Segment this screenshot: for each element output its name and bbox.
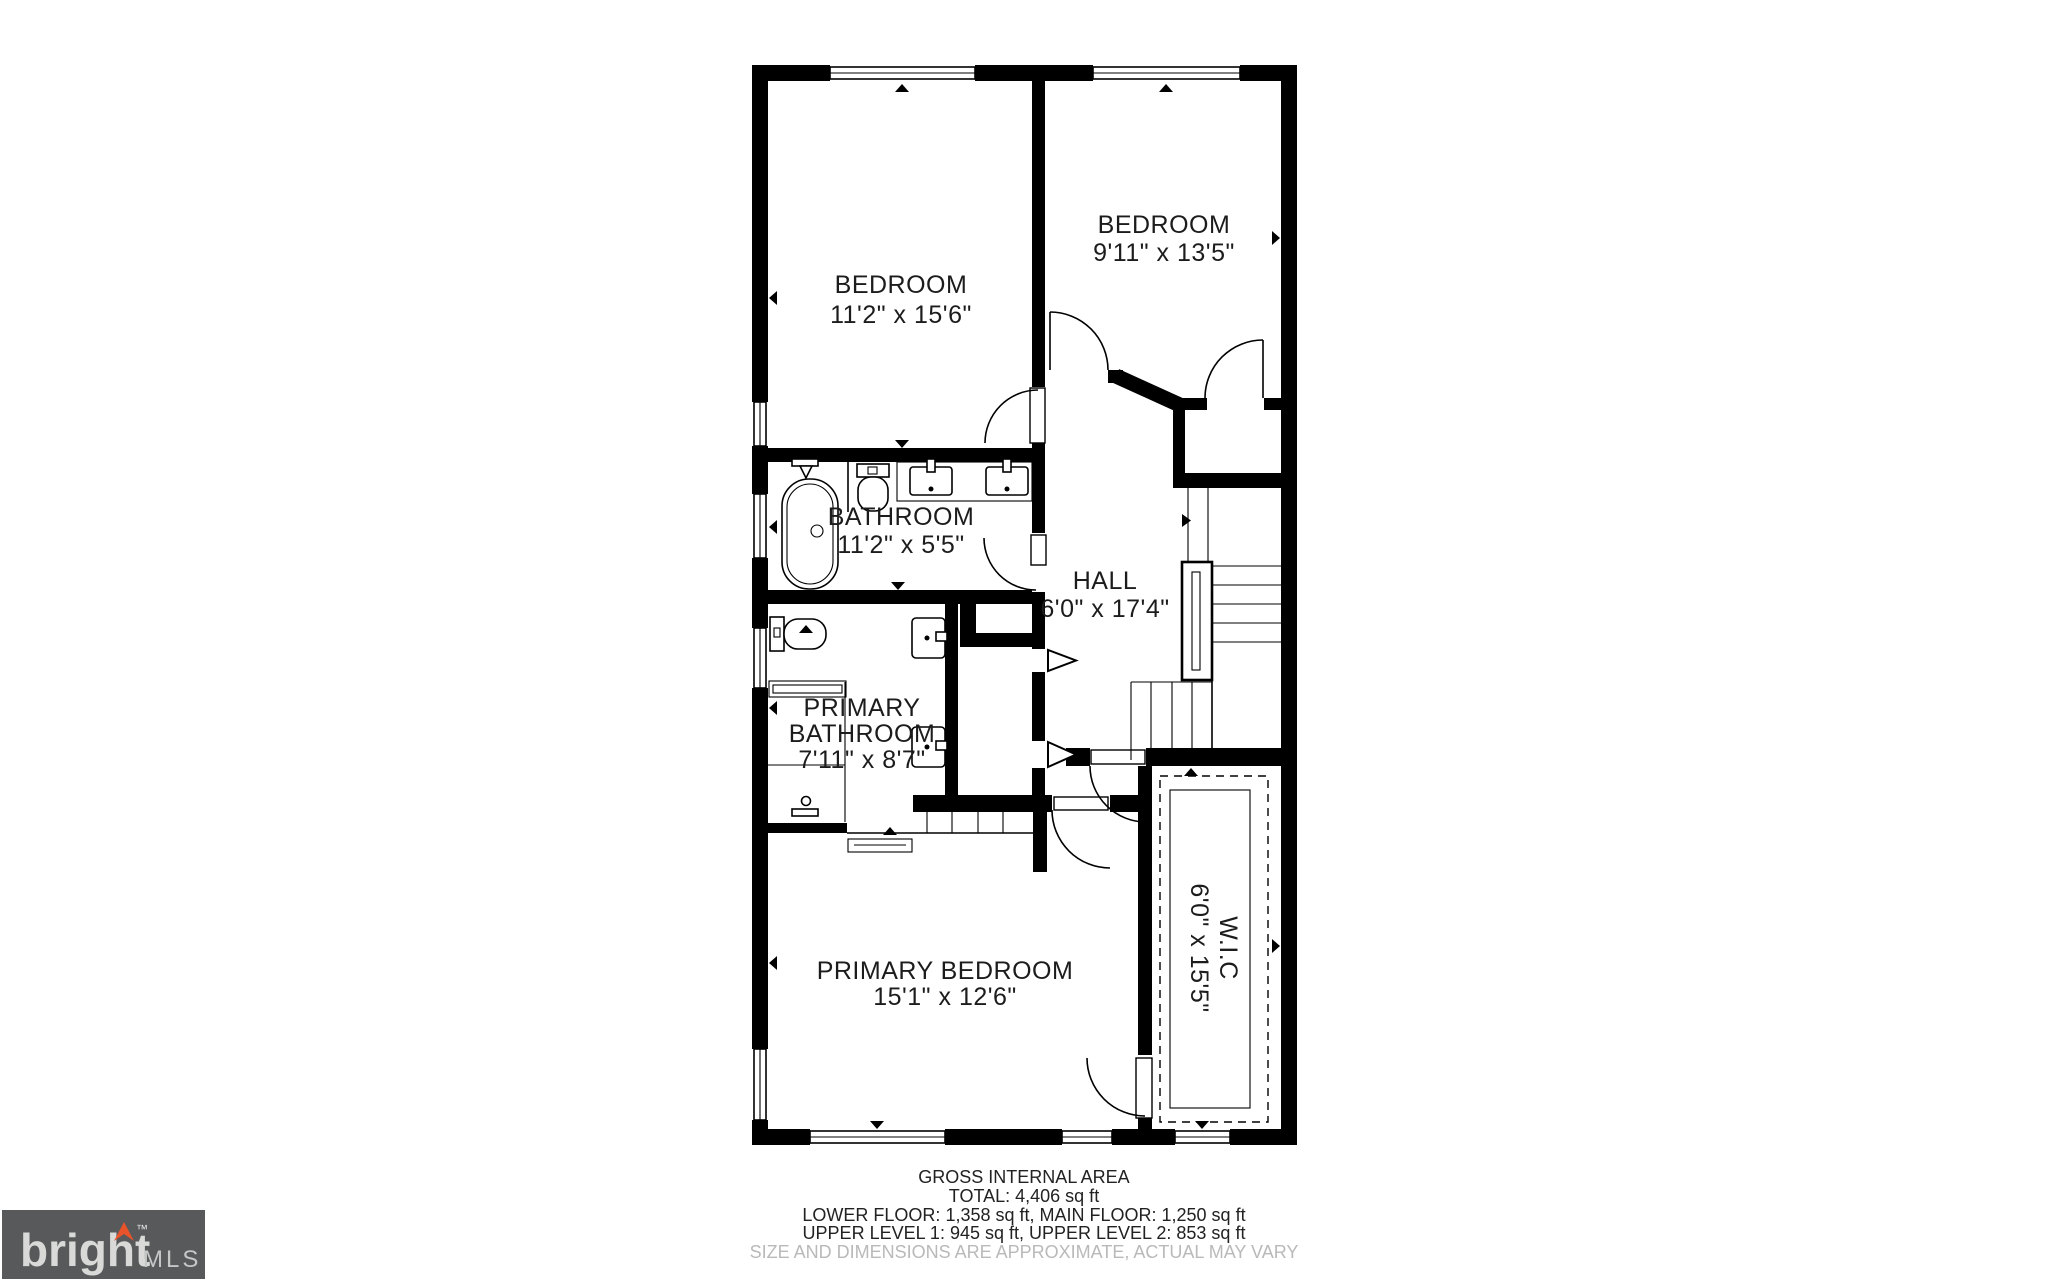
label-bedroom1-name: BEDROOM xyxy=(835,271,968,299)
marker-left-icon xyxy=(769,520,777,534)
label-wic-name: W.I.C xyxy=(1214,916,1242,980)
brightmls-logo: bright ™ MLS xyxy=(2,1210,205,1279)
logo-tm: ™ xyxy=(136,1222,148,1236)
label-wic-dims: 6'0" x 15'5" xyxy=(1185,883,1213,1012)
label-bedroom2-name: BEDROOM xyxy=(1098,211,1231,239)
window xyxy=(754,402,766,446)
label-hall-name: HALL xyxy=(1073,567,1138,595)
marker-down-icon xyxy=(895,440,909,448)
marker-left-icon xyxy=(769,291,777,305)
window xyxy=(810,1131,945,1143)
label-bedroom2-dims: 9'11" x 13'5" xyxy=(1093,239,1235,267)
marker-down-icon xyxy=(891,582,905,590)
label-bedroom1-dims: 11'2" x 15'6" xyxy=(830,301,972,329)
label-primary-bathroom-line2: BATHROOM xyxy=(789,720,936,748)
marker-left-icon xyxy=(769,956,777,970)
logo-mls-text: MLS xyxy=(143,1246,201,1273)
floor-plan-svg: BEDROOM 11'2" x 15'6" BEDROOM 9'11" x 13… xyxy=(0,0,2048,1279)
marker-right-icon xyxy=(1272,939,1280,953)
window xyxy=(754,1049,766,1120)
marker-right-icon xyxy=(1182,514,1191,527)
shower-head-icon xyxy=(792,459,818,478)
window xyxy=(754,628,766,688)
label-bathroom-dims: 11'2" x 5'5" xyxy=(837,531,964,559)
summary-disclaimer: SIZE AND DIMENSIONS ARE APPROXIMATE, ACT… xyxy=(750,1242,1299,1262)
window xyxy=(1093,67,1240,79)
opening-triangle-icon xyxy=(1048,650,1076,671)
area-summary: GROSS INTERNAL AREA TOTAL: 4,406 sq ft L… xyxy=(750,1167,1299,1262)
window xyxy=(754,494,766,558)
label-primary-bathroom-line1: PRIMARY xyxy=(804,694,921,722)
label-bathroom-name: BATHROOM xyxy=(828,503,975,531)
staircase xyxy=(1131,488,1281,760)
wall-sink xyxy=(912,618,947,658)
marker-right-icon xyxy=(1272,231,1280,245)
marker-left-icon xyxy=(769,701,777,715)
window xyxy=(1175,1131,1230,1143)
window xyxy=(830,67,975,79)
steps-primary-suite xyxy=(847,812,1033,852)
door-bathroom xyxy=(984,535,1046,590)
marker-up-icon xyxy=(895,84,909,92)
label-hall-dims: 6'0" x 17'4" xyxy=(1040,595,1169,623)
toilet xyxy=(770,617,826,651)
door-bedroom2 xyxy=(1050,312,1108,370)
summary-total: TOTAL: 4,406 sq ft xyxy=(949,1186,1099,1206)
label-primary-bathroom-dims: 7'11" x 8'7" xyxy=(798,746,925,774)
vanity-double-sink xyxy=(897,459,1032,501)
marker-down-icon xyxy=(1195,1121,1209,1129)
door-primary-bedroom xyxy=(1052,797,1110,868)
summary-floors-1: LOWER FLOOR: 1,358 sq ft, MAIN FLOOR: 1,… xyxy=(802,1205,1245,1225)
door-wic-bottom xyxy=(1087,1058,1152,1118)
marker-down-icon xyxy=(870,1121,884,1129)
logo-brand-text: bright xyxy=(20,1224,150,1276)
marker-up-icon xyxy=(1184,768,1198,776)
shower-head-icon xyxy=(792,797,818,817)
room-labels: BEDROOM 11'2" x 15'6" BEDROOM 9'11" x 13… xyxy=(789,211,1242,1013)
summary-title: GROSS INTERNAL AREA xyxy=(918,1167,1129,1187)
label-primary-bedroom-name: PRIMARY BEDROOM xyxy=(817,957,1074,985)
summary-floors-2: UPPER LEVEL 1: 945 sq ft, UPPER LEVEL 2:… xyxy=(803,1223,1246,1243)
floor-plan-page: BEDROOM 11'2" x 15'6" BEDROOM 9'11" x 13… xyxy=(0,0,2048,1279)
door-bedroom1 xyxy=(985,388,1045,443)
door-bedroom2-closet xyxy=(1205,340,1263,398)
window xyxy=(1062,1131,1112,1143)
marker-up-icon xyxy=(883,827,897,835)
stair-railing xyxy=(1182,562,1212,680)
bathtub xyxy=(782,479,838,589)
wic-closet-outline xyxy=(1160,776,1268,1122)
doors xyxy=(984,312,1263,1118)
label-primary-bedroom-dims: 15'1" x 12'6" xyxy=(873,983,1017,1011)
marker-up-icon xyxy=(1159,84,1173,92)
